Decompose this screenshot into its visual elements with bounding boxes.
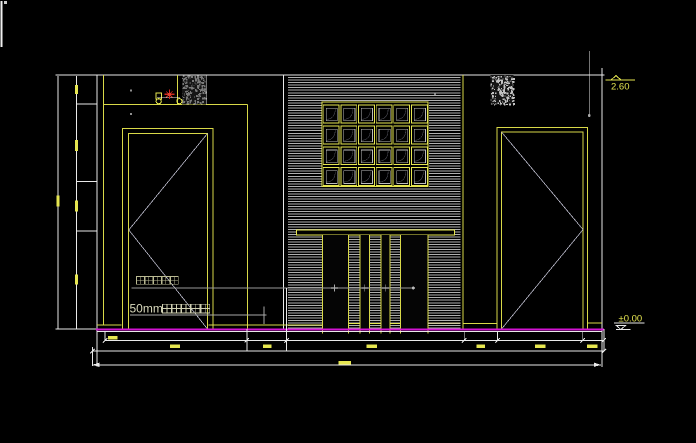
svg-text:2.60: 2.60	[611, 82, 630, 93]
svg-text:50mm: 50mm	[130, 302, 163, 316]
